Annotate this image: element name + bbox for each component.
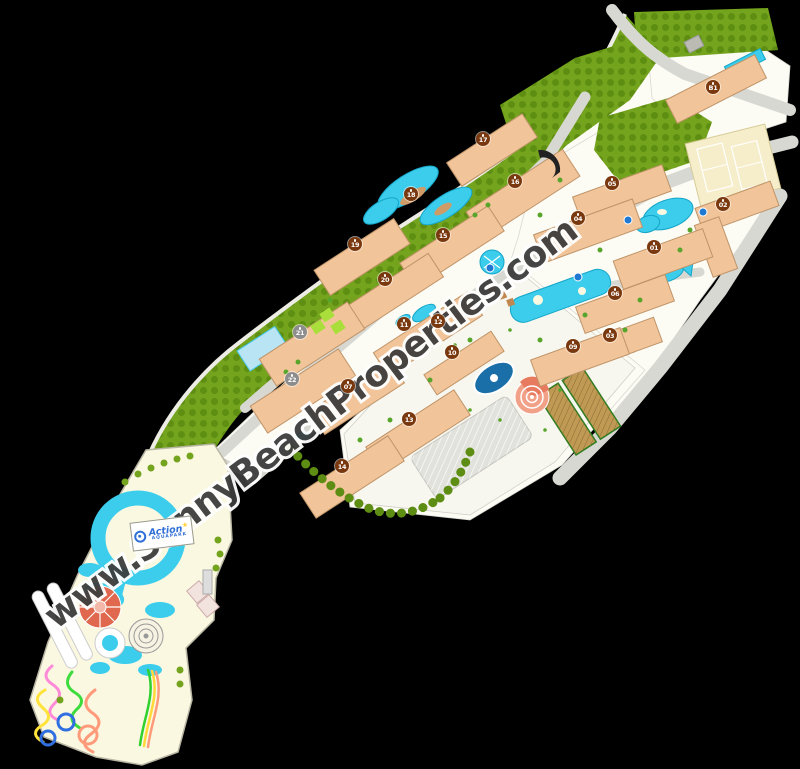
building-marker-20[interactable]: 20 [378, 272, 392, 286]
wave-swirl-icon [133, 529, 146, 542]
building-marker-label: 16 [511, 179, 519, 186]
building-marker-16[interactable]: 16 [508, 174, 522, 188]
building-marker-label: 06 [611, 291, 619, 298]
building-marker-label: 14 [338, 464, 346, 471]
building-marker-18[interactable]: 18 [404, 187, 418, 201]
building-marker-04[interactable]: 04 [571, 211, 585, 225]
building-marker-label: 21 [296, 330, 304, 337]
round-pool [95, 628, 125, 658]
concentric-pool [129, 619, 163, 653]
building-marker-03[interactable]: 03 [603, 328, 617, 342]
building-marker-label: 03 [606, 333, 614, 340]
building-marker-label: 11 [400, 322, 408, 329]
building-marker-06[interactable]: 06 [608, 286, 622, 300]
building-marker-21[interactable]: 21 [293, 325, 307, 339]
poi-dot[interactable] [624, 216, 633, 225]
building-marker-label: 15 [439, 233, 447, 240]
building-marker-label: 18 [407, 192, 415, 199]
building-marker-label: 12 [434, 319, 442, 326]
poi-dot[interactable] [574, 273, 583, 282]
building-marker-label: 17 [479, 137, 487, 144]
building-marker-label: 09 [569, 344, 577, 351]
site-map: www.SunnyBeachProperties.com Action★ AQU… [0, 0, 800, 769]
building-marker-12[interactable]: 12 [431, 314, 445, 328]
building-marker-label: 01 [650, 245, 658, 252]
building-marker-22[interactable]: 22 [285, 372, 299, 386]
building-marker-17[interactable]: 17 [476, 132, 490, 146]
building-marker-label: 22 [288, 377, 296, 384]
building-marker-10[interactable]: 10 [445, 345, 459, 359]
building-marker-label: 04 [574, 216, 582, 223]
building-marker-09[interactable]: 09 [566, 339, 580, 353]
star-icon: ★ [181, 520, 188, 529]
poi-dot[interactable] [486, 264, 495, 273]
building-marker-label: B1 [709, 85, 718, 92]
building-marker-label: 19 [351, 242, 359, 249]
building-marker-02[interactable]: 02 [716, 197, 730, 211]
building-marker-15[interactable]: 15 [436, 228, 450, 242]
building-marker-label: 13 [405, 417, 413, 424]
building-marker-label: 20 [381, 277, 389, 284]
building-marker-19[interactable]: 19 [348, 237, 362, 251]
building-marker-05[interactable]: 05 [605, 176, 619, 190]
resort-map-canvas: www.SunnyBeachProperties.com [0, 0, 800, 769]
building-marker-01[interactable]: 01 [647, 240, 661, 254]
building-marker-07[interactable]: 07 [341, 379, 355, 393]
building-marker-label: 07 [344, 384, 352, 391]
poi-dot[interactable] [699, 208, 708, 217]
building-marker-11[interactable]: 11 [397, 317, 411, 331]
building-marker-B1[interactable]: B1 [706, 80, 720, 94]
building-marker-label: 10 [448, 350, 456, 357]
building-marker-label: 02 [719, 202, 727, 209]
building-marker-label: 05 [608, 181, 616, 188]
building-marker-14[interactable]: 14 [335, 459, 349, 473]
building-marker-13[interactable]: 13 [402, 412, 416, 426]
